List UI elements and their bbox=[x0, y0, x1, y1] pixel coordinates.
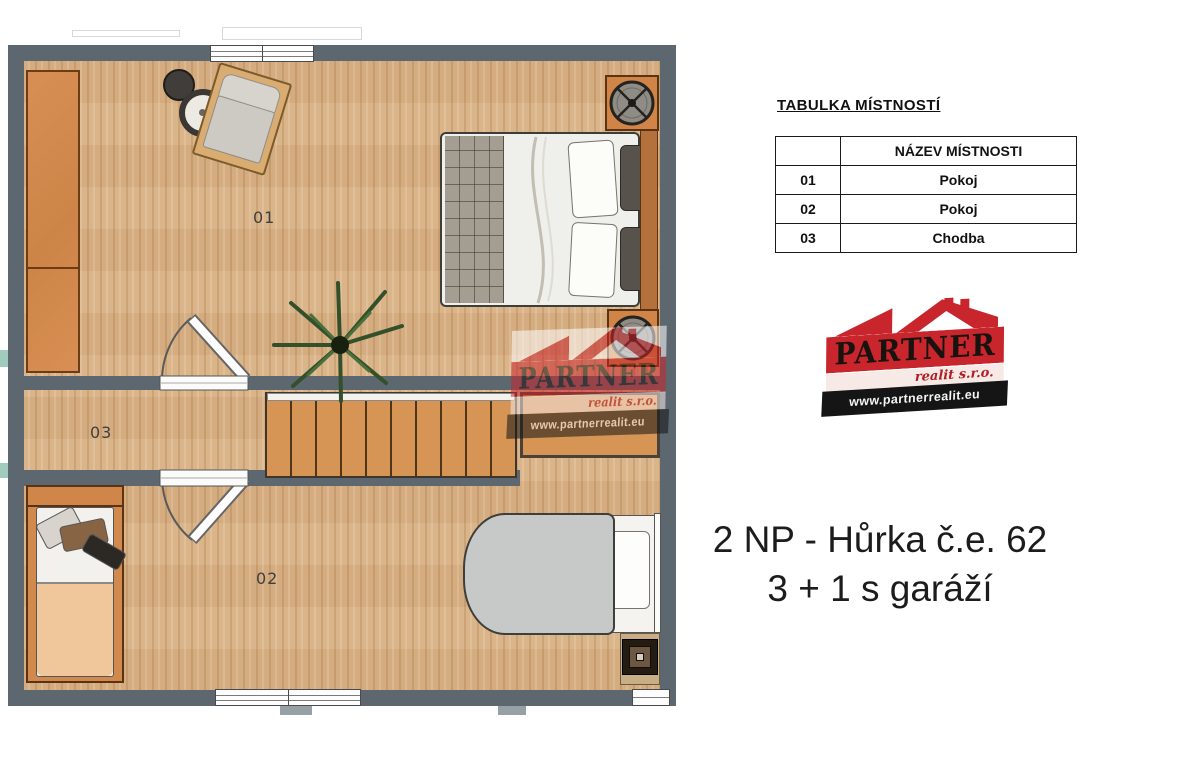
nightstand bbox=[605, 75, 659, 131]
room-label-03: 03 bbox=[90, 423, 112, 442]
bed-pillow bbox=[567, 139, 618, 218]
bed-pillow bbox=[568, 222, 618, 298]
rooms-table-title: TABULKA MÍSTNOSTÍ bbox=[777, 97, 940, 114]
logo-url: www.partnerrealit.eu bbox=[506, 409, 669, 439]
company-logo: PARTNER realit s.r.o. www.partnerrealit.… bbox=[826, 294, 1005, 417]
window-bottom-right bbox=[632, 689, 670, 706]
rooms-table: NÁZEV MÍSTNOSTI 01 Pokoj 02 Pokoj 03 Cho… bbox=[775, 136, 1077, 253]
room-name-cell: Pokoj bbox=[841, 195, 1077, 224]
window-top bbox=[210, 45, 314, 62]
caption-line1: 2 NP - Hůrka č.e. 62 bbox=[690, 515, 1070, 564]
corner-accent bbox=[0, 350, 8, 367]
room-id-cell: 02 bbox=[776, 195, 841, 224]
wardrobe bbox=[26, 70, 80, 373]
plan-caption: 2 NP - Hůrka č.e. 62 3 + 1 s garáží bbox=[690, 515, 1070, 613]
checkered-throw bbox=[445, 136, 504, 303]
bed-frame bbox=[654, 513, 661, 633]
single-bed-left bbox=[26, 485, 124, 683]
corner-accent bbox=[0, 463, 8, 478]
table-row: 02 Pokoj bbox=[776, 195, 1077, 224]
bed-headboard bbox=[640, 130, 658, 310]
room-name-cell: Chodba bbox=[841, 224, 1077, 253]
logo-brand-text: PARTNER bbox=[518, 356, 659, 399]
window-bottom bbox=[215, 689, 361, 706]
staircase bbox=[265, 392, 517, 478]
room-id-cell: 03 bbox=[776, 224, 841, 253]
bed-blanket bbox=[37, 582, 113, 676]
exterior-sill-mark bbox=[72, 30, 180, 37]
staircase-rail bbox=[267, 393, 515, 401]
table-row: 01 Pokoj bbox=[776, 166, 1077, 195]
watermark-logo: PARTNER realit s.r.o. www.partnerrealit.… bbox=[510, 326, 667, 440]
room-name-cell: Pokoj bbox=[841, 166, 1077, 195]
room-label-02: 02 bbox=[256, 569, 278, 588]
header-id-cell bbox=[776, 137, 841, 166]
room-id-cell: 01 bbox=[776, 166, 841, 195]
page: 01 03 02 PARTNER realit s.r.o. www.partn… bbox=[0, 0, 1200, 764]
single-bed-right bbox=[463, 513, 615, 635]
corridor-wall bbox=[24, 376, 160, 390]
caption-line2: 3 + 1 s garáží bbox=[690, 564, 1070, 613]
table-header-row: NÁZEV MÍSTNOSTI bbox=[776, 137, 1077, 166]
table-row: 03 Chodba bbox=[776, 224, 1077, 253]
corridor-wall bbox=[24, 470, 160, 486]
room-label-01: 01 bbox=[253, 208, 275, 227]
exterior-sill-mark bbox=[222, 27, 362, 40]
header-name-cell: NÁZEV MÍSTNOSTI bbox=[841, 137, 1077, 166]
square-lamp bbox=[622, 639, 658, 675]
